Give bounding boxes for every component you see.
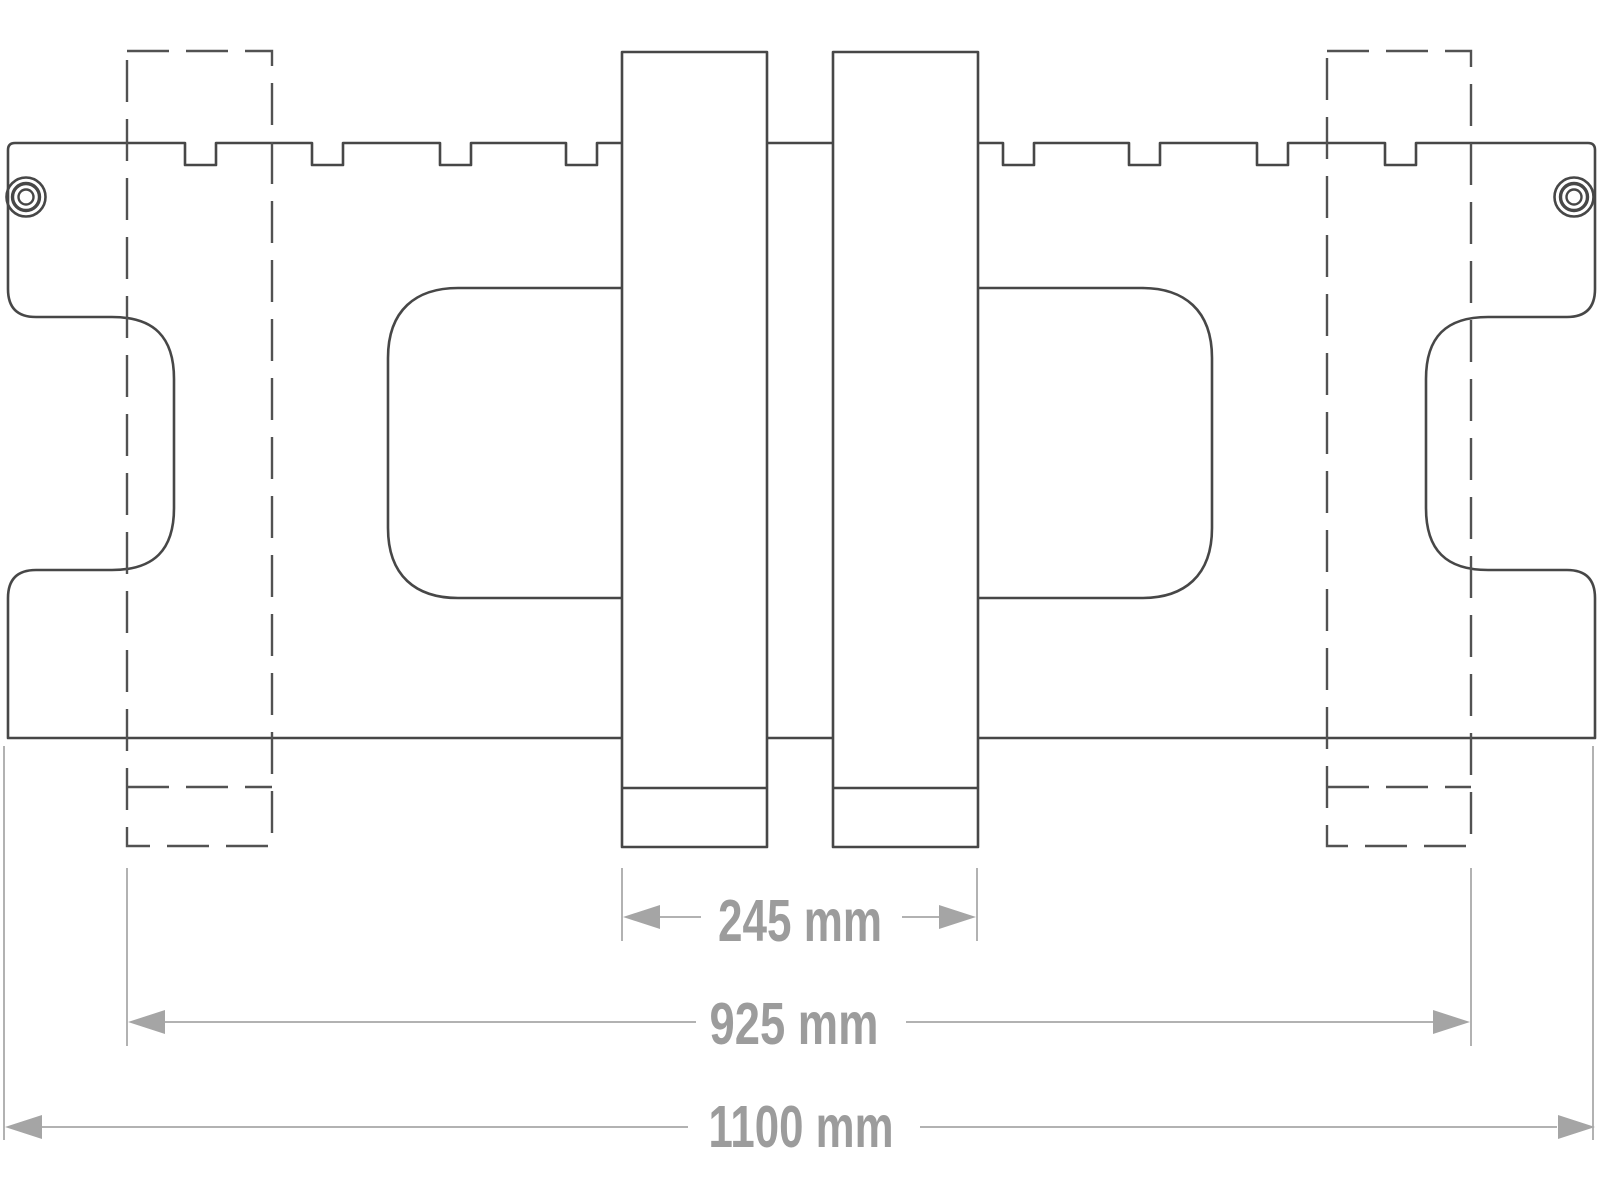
carriage-frame: [8, 143, 1595, 738]
technical-drawing: 245 mm 925 mm 1100 mm: [0, 0, 1600, 1200]
carriage-plate-outline: [8, 143, 1595, 738]
bolt-right-hole-circle: [1567, 190, 1582, 205]
dimension-245: 245 mm: [622, 868, 977, 954]
bolt-left-hole-circle: [19, 190, 34, 205]
dimension-1100-arrow-right: [1558, 1115, 1595, 1139]
dashed-fork-right-outline: [1327, 51, 1471, 846]
bolt-right: [1555, 178, 1594, 217]
fork-right-outline: [833, 52, 978, 847]
dimension-925-arrow-left: [128, 1010, 165, 1034]
dimension-1100-label: 1100 mm: [709, 1094, 894, 1160]
fork-left: [622, 52, 767, 847]
dimension-925-label: 925 mm: [710, 991, 879, 1057]
dimension-1100-arrow-left: [5, 1115, 42, 1139]
dashed-fork-right: [1327, 51, 1471, 846]
dashed-fork-left-outline: [127, 51, 272, 846]
bolt-left-nut-circle: [13, 184, 40, 211]
bolt-left: [7, 178, 46, 217]
dimension-245-arrow-right: [939, 905, 976, 929]
dashed-fork-left: [127, 51, 272, 846]
dimension-245-arrow-left: [623, 905, 660, 929]
fork-right: [833, 52, 978, 847]
dimension-245-label: 245 mm: [718, 888, 882, 954]
bolt-right-nut-circle: [1561, 184, 1588, 211]
fork-left-outline: [622, 52, 767, 847]
dimension-925-arrow-right: [1433, 1010, 1470, 1034]
drawing-canvas: 245 mm 925 mm 1100 mm: [0, 0, 1600, 1200]
